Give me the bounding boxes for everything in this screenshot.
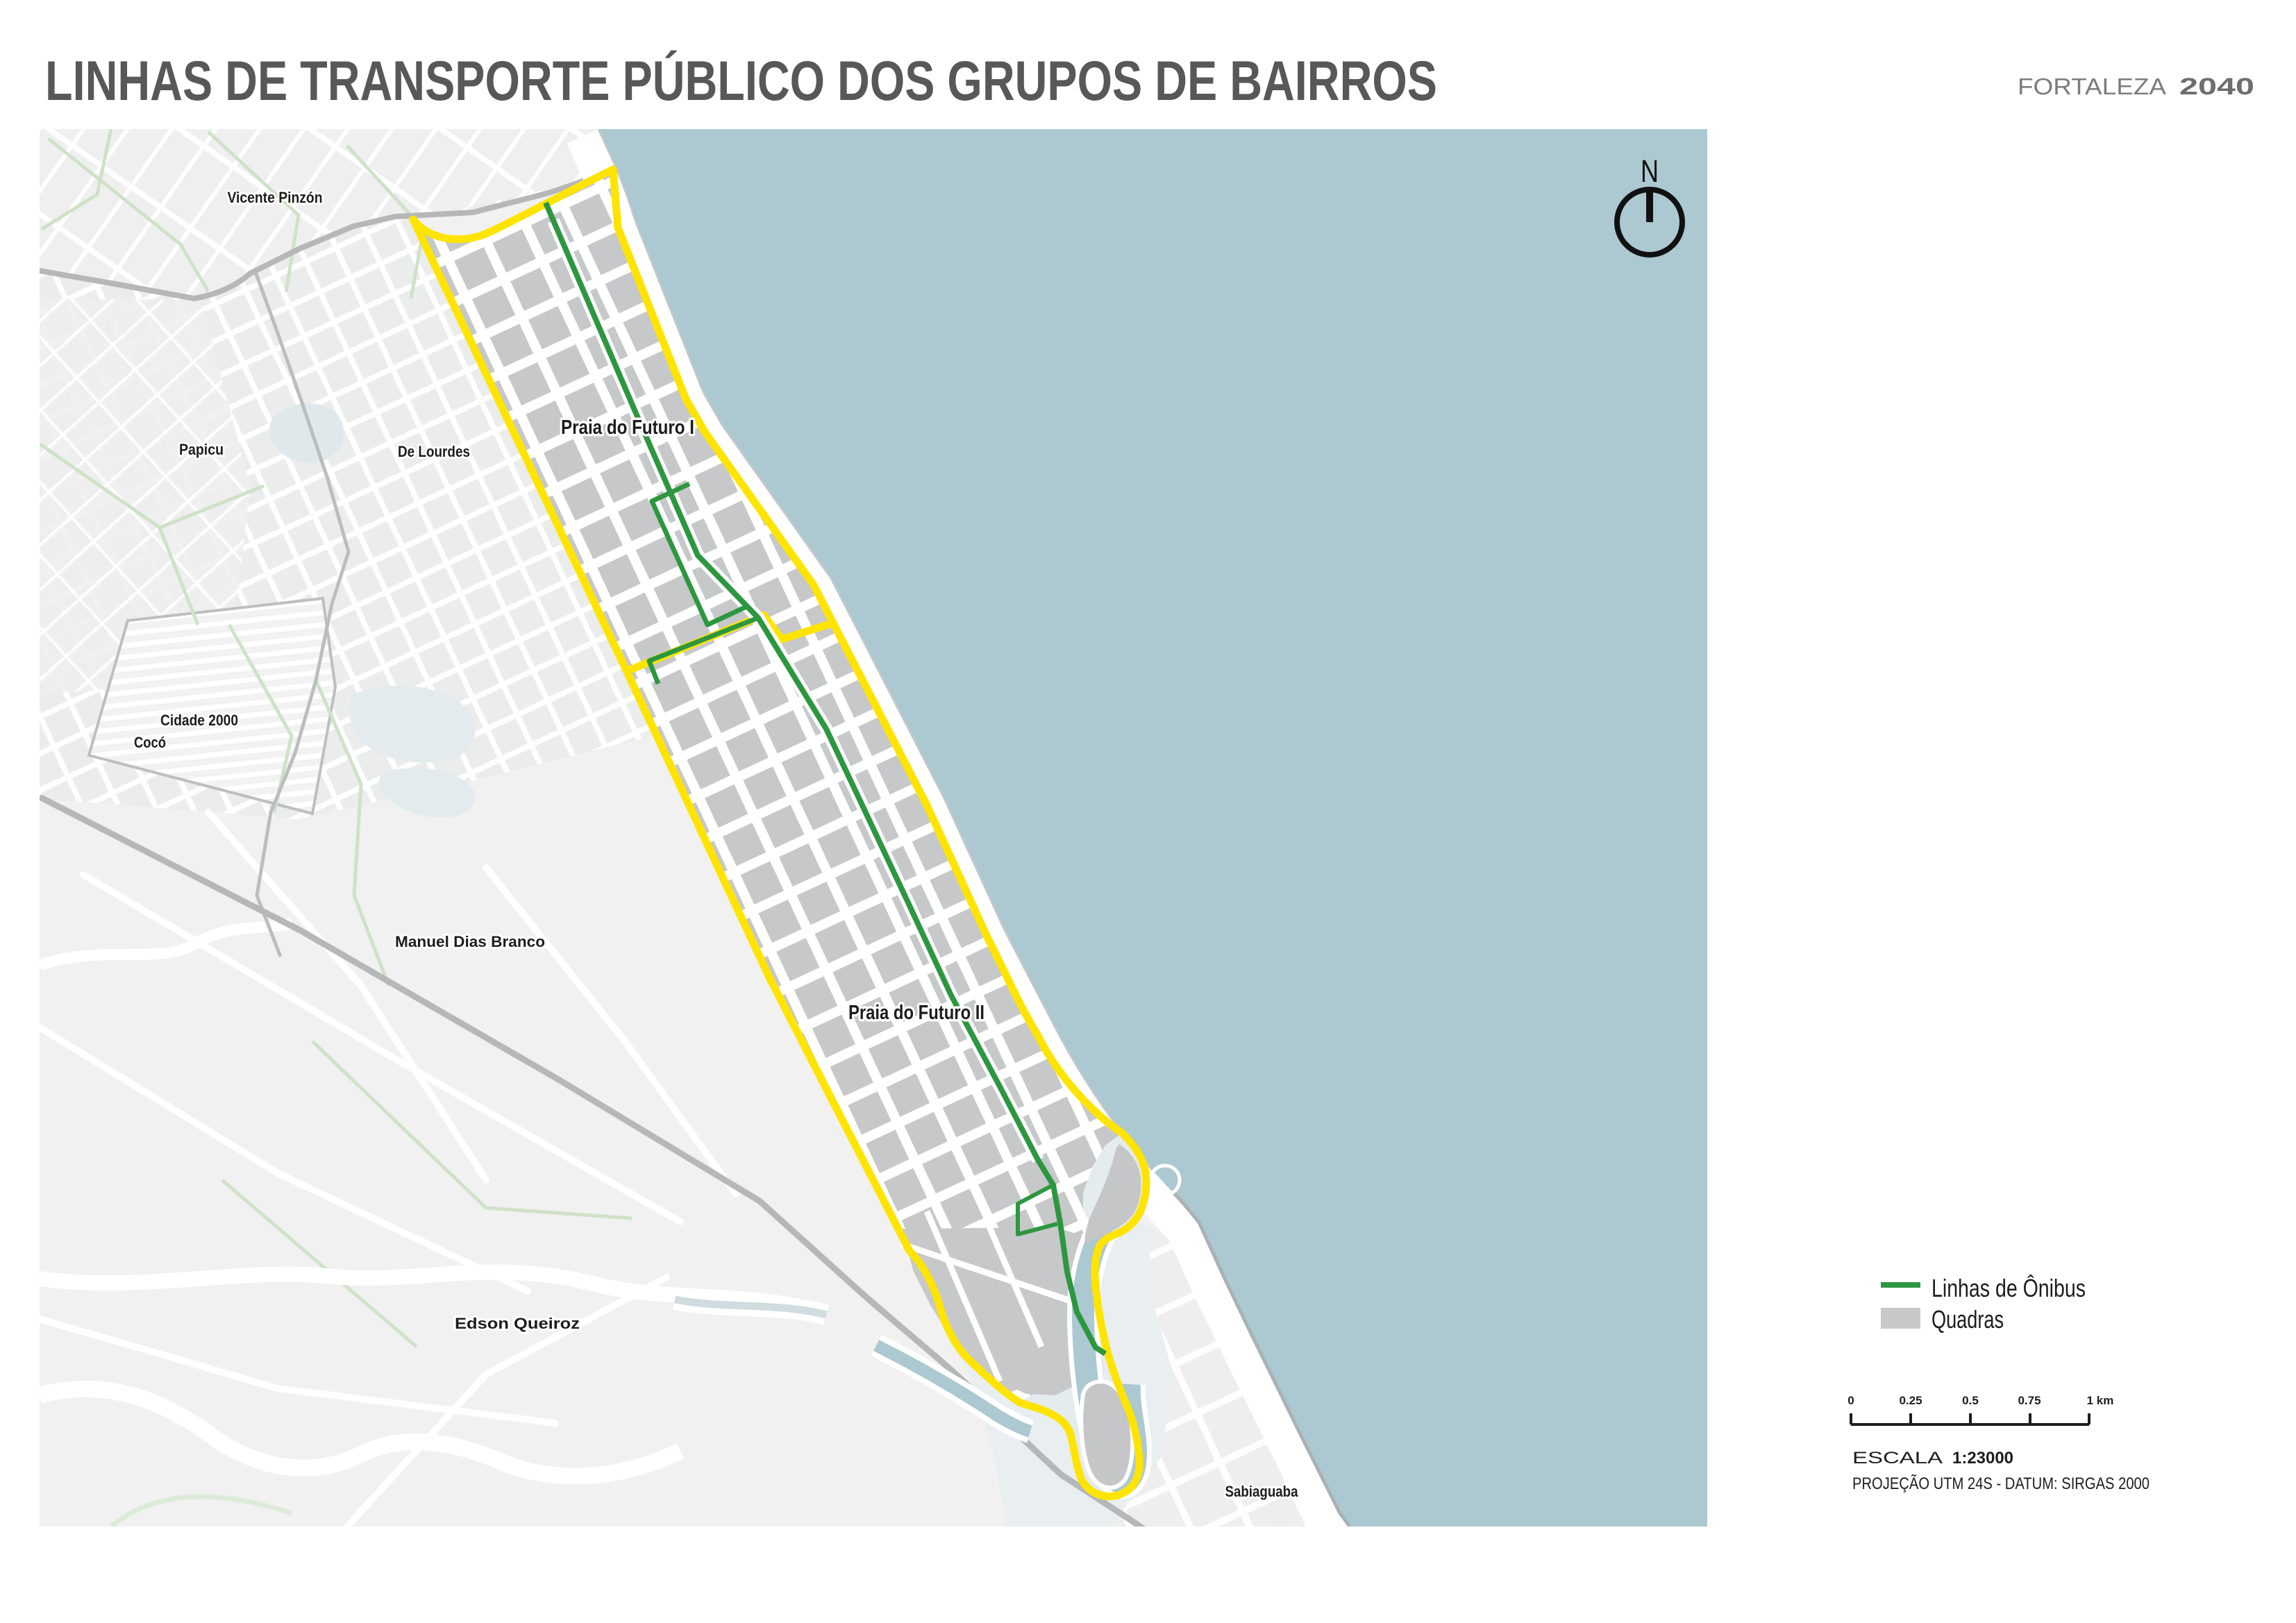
svg-text:Sabiaguaba: Sabiaguaba xyxy=(1225,1483,1299,1500)
svg-text:0.5: 0.5 xyxy=(1962,1394,1979,1407)
svg-text:PROJEÇÃO UTM 24S - DATUM: SIRG: PROJEÇÃO UTM 24S - DATUM: SIRGAS 2000 xyxy=(1852,1474,2150,1493)
svg-text:1 km: 1 km xyxy=(2087,1394,2114,1407)
svg-text:Papicu: Papicu xyxy=(179,441,224,458)
svg-text:Praia do Futuro II: Praia do Futuro II xyxy=(848,1002,984,1024)
svg-text:Edson Queiroz: Edson Queiroz xyxy=(455,1315,580,1332)
svg-text:0: 0 xyxy=(1847,1394,1854,1407)
svg-text:Cidade 2000: Cidade 2000 xyxy=(160,712,238,729)
svg-text:ESCALA: ESCALA xyxy=(1852,1449,1943,1468)
svg-text:N: N xyxy=(1641,153,1659,189)
svg-text:2040: 2040 xyxy=(2179,74,2254,100)
svg-text:Manuel Dias Branco: Manuel Dias Branco xyxy=(395,933,545,950)
svg-text:LINHAS DE TRANSPORTE PÚBLICO D: LINHAS DE TRANSPORTE PÚBLICO DOS GRUPOS … xyxy=(45,49,1437,112)
svg-text:0.75: 0.75 xyxy=(2018,1394,2041,1407)
svg-text:1:23000: 1:23000 xyxy=(1952,1449,2013,1468)
svg-text:Vicente Pinzón: Vicente Pinzón xyxy=(228,189,323,206)
svg-text:Cocó: Cocó xyxy=(134,734,166,751)
svg-text:De Lourdes: De Lourdes xyxy=(398,443,470,460)
svg-text:Praia do Futuro I: Praia do Futuro I xyxy=(561,417,694,439)
svg-text:0.25: 0.25 xyxy=(1899,1394,1922,1407)
svg-text:Linhas de Ônibus: Linhas de Ônibus xyxy=(1932,1274,2086,1302)
svg-text:Quadras: Quadras xyxy=(1932,1305,2004,1334)
svg-text:FORTALEZA: FORTALEZA xyxy=(2018,74,2166,99)
